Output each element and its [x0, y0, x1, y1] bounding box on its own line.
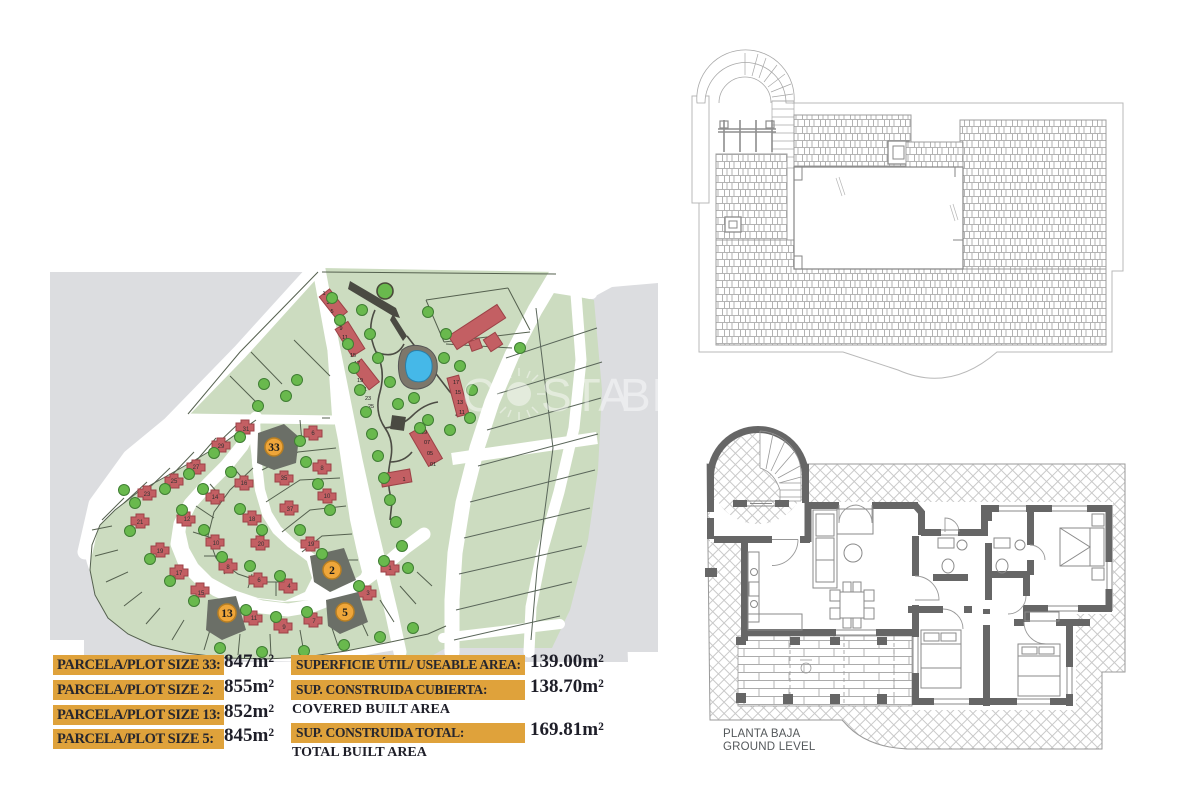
- svg-text:35: 35: [281, 476, 288, 482]
- svg-text:BL: BL: [620, 369, 678, 421]
- svg-text:27: 27: [193, 465, 200, 471]
- svg-text:25: 25: [171, 479, 178, 485]
- svg-text:12: 12: [184, 517, 191, 523]
- svg-text:15: 15: [455, 390, 461, 396]
- svg-text:20: 20: [258, 542, 265, 548]
- svg-text:17: 17: [453, 380, 459, 386]
- svg-text:17: 17: [176, 571, 183, 577]
- svg-text:11: 11: [251, 616, 258, 622]
- svg-text:21: 21: [137, 520, 144, 526]
- svg-text:31: 31: [243, 427, 250, 433]
- svg-text:23: 23: [365, 396, 371, 402]
- svg-text:15: 15: [350, 353, 356, 359]
- svg-text:37: 37: [287, 507, 294, 513]
- svg-text:10: 10: [213, 541, 220, 547]
- svg-text:19: 19: [357, 378, 363, 384]
- svg-text:2: 2: [329, 565, 335, 577]
- svg-text:07: 07: [424, 440, 430, 446]
- svg-text:5: 5: [330, 309, 333, 315]
- svg-text:C: C: [462, 369, 495, 421]
- svg-text:19: 19: [308, 542, 315, 548]
- svg-text:10: 10: [324, 494, 331, 500]
- svg-text:15: 15: [198, 591, 205, 597]
- svg-text:9: 9: [339, 326, 342, 332]
- svg-text:01: 01: [430, 462, 436, 468]
- svg-text:19: 19: [157, 549, 164, 555]
- svg-text:14: 14: [212, 495, 219, 501]
- svg-text:23: 23: [144, 492, 151, 498]
- svg-text:13: 13: [221, 608, 233, 620]
- svg-text:1: 1: [402, 477, 405, 483]
- svg-text:5: 5: [342, 607, 348, 619]
- svg-text:STA: STA: [541, 369, 630, 421]
- svg-text:05: 05: [427, 451, 433, 457]
- svg-text:33: 33: [268, 442, 280, 454]
- svg-text:29: 29: [218, 444, 225, 450]
- svg-text:18: 18: [249, 517, 256, 523]
- svg-text:16: 16: [241, 481, 248, 487]
- svg-text:1: 1: [322, 291, 325, 297]
